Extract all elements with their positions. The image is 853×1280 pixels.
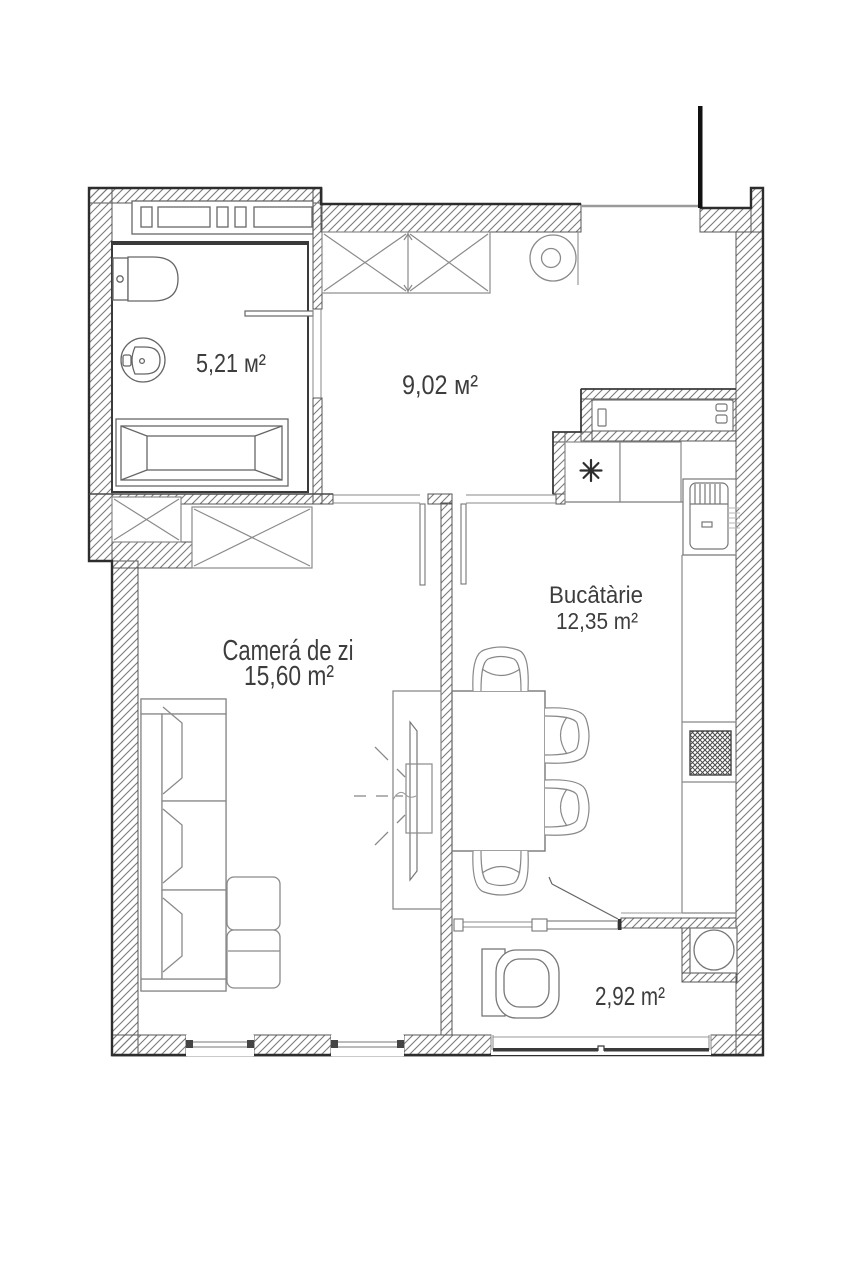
svg-text:2,92 m²: 2,92 m²: [595, 981, 665, 1011]
svg-text:Bucâtàrie: Bucâtàrie: [549, 582, 643, 609]
svg-text:12,35 m²: 12,35 m²: [556, 608, 638, 634]
svg-text:5,21 м²: 5,21 м²: [196, 348, 266, 378]
svg-text:9,02 м²: 9,02 м²: [402, 370, 478, 400]
svg-text:15,60 m²: 15,60 m²: [244, 660, 334, 691]
